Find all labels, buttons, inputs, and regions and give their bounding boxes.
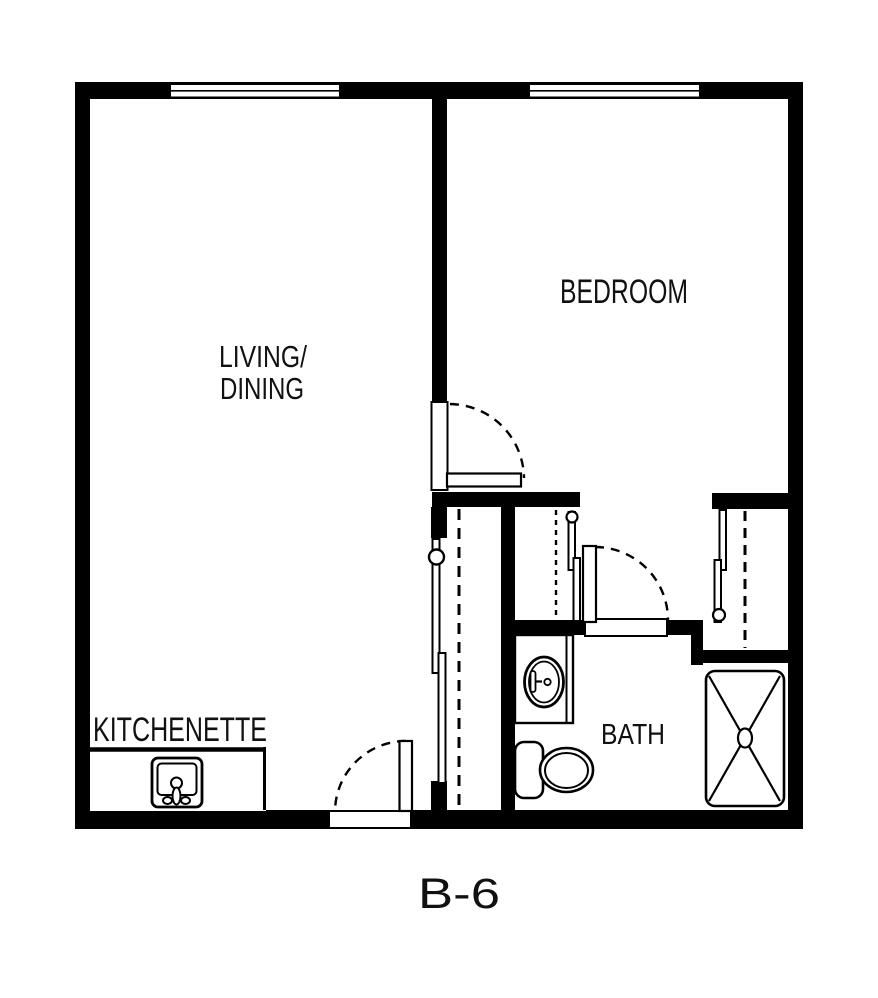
bath-door-swing-arc	[595, 547, 668, 620]
entry-door-panel	[400, 741, 413, 811]
living-dining-label-line2: DINING	[220, 371, 304, 406]
bedroom-closet-door-pull	[713, 609, 725, 621]
wall-right	[788, 82, 803, 829]
wall-shower-north	[691, 650, 803, 663]
wall-bottom	[75, 810, 803, 829]
bedroom-closet-door	[713, 510, 726, 622]
living-dining-label-line1: LIVING/	[219, 339, 307, 374]
hall-closet-door-panel-2	[574, 558, 581, 621]
entry-door-threshold	[329, 811, 411, 828]
wall-bedroom-closet-north	[712, 493, 790, 509]
living-closet-door	[429, 539, 446, 783]
wall-living-closet-stub-bottom	[431, 781, 447, 812]
bathroom-sink-drain	[544, 679, 550, 685]
toilet	[515, 742, 593, 798]
wall-living-closet-stub-top	[431, 507, 447, 538]
unit-title: B-6	[418, 870, 500, 918]
shower	[706, 671, 784, 806]
kitchenette-counter	[90, 747, 266, 811]
bath-door-threshold	[585, 619, 667, 636]
bedroom-door-opening	[432, 402, 448, 490]
toilet-bowl-inner	[545, 753, 588, 788]
door-openings	[329, 402, 667, 828]
bedroom-label: BEDROOM	[560, 273, 688, 311]
floor-plan: LIVING/ DINING BEDROOM KITCHENETTE BATH …	[0, 0, 878, 998]
floor-plan-page: LIVING/ DINING BEDROOM KITCHENETTE BATH …	[0, 0, 878, 998]
kitchen-faucet-handle-right	[181, 797, 190, 804]
kitchen-sink	[152, 758, 202, 807]
kitchenette-label: KITCHENETTE	[93, 711, 267, 749]
bedroom-door-panel	[447, 474, 521, 487]
bathroom-sink-faucet	[531, 671, 536, 692]
entry-door-swing-arc	[335, 741, 406, 811]
shower-drain	[738, 729, 752, 748]
bedroom-door-swing-arc	[450, 404, 524, 478]
kitchen-faucet-handle-left	[163, 797, 172, 804]
wall-living-bedroom	[432, 90, 447, 405]
kitchen-faucet-spout	[173, 788, 181, 805]
bathroom-sink	[525, 657, 564, 707]
room-labels: LIVING/ DINING BEDROOM KITCHENETTE BATH	[93, 273, 688, 751]
wall-left	[75, 82, 90, 829]
closet-doors	[429, 510, 726, 783]
bath-door-panel	[583, 546, 596, 622]
living-closet-door-panel-2	[439, 653, 446, 783]
wall-bath-west	[501, 496, 515, 812]
hall-closet-door	[567, 512, 581, 622]
living-closet-door-pull	[429, 550, 444, 565]
bedroom-window	[529, 84, 700, 98]
hall-closet-door-pull	[567, 512, 578, 523]
bath-label: BATH	[601, 719, 665, 751]
living-window	[170, 84, 340, 98]
